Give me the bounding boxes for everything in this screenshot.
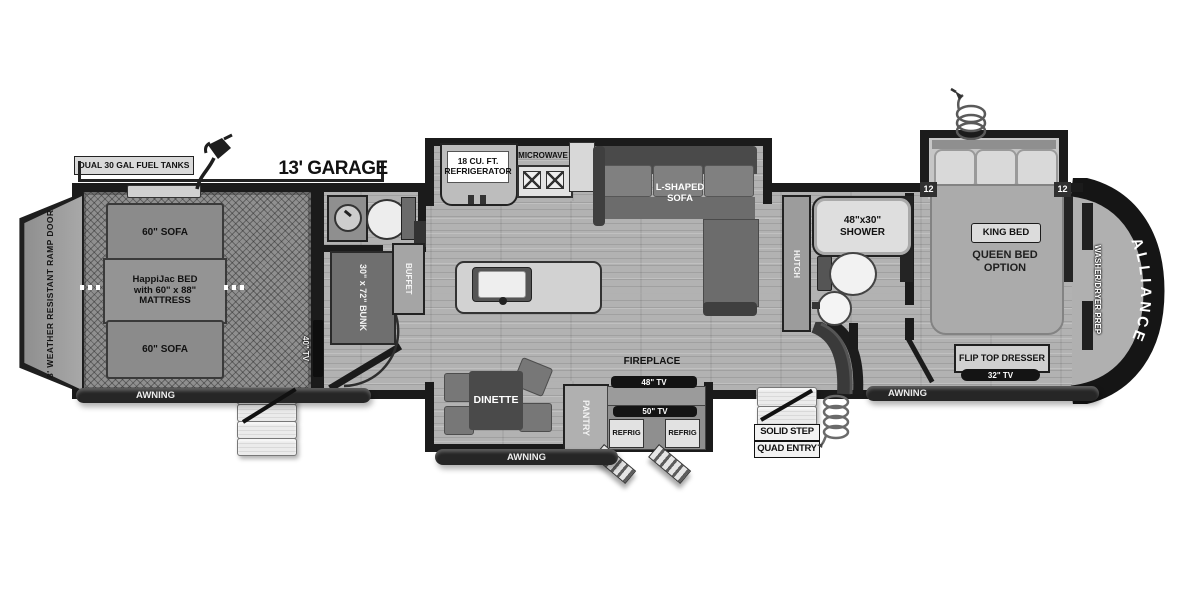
ramp-door-label: 8' WEATHER RESISTANT RAMP DOOR: [42, 208, 58, 380]
garage-sofa-bottom: 60" SOFA: [106, 320, 224, 379]
happijac-bed: HappiJac BED with 60" x 88" MATTRESS: [103, 258, 227, 324]
burner-left: [523, 171, 541, 189]
cooktop: [517, 165, 573, 198]
fuel-tanks-label: DUAL 30 GAL FUEL TANKS: [74, 156, 194, 175]
sofa-arm-left: [593, 146, 605, 226]
refrigerator-line2: REFRIGERATOR: [444, 167, 511, 177]
tv-50: 50" TV: [613, 406, 697, 417]
slide-depth-right: 12: [1054, 182, 1071, 197]
sofa-label-line2: SOFA: [667, 194, 693, 205]
floorplan: ALLIANCE 8' WEATHER RESISTANT RAMP DOOR …: [0, 0, 1200, 600]
garage-dim-tick-left: [78, 161, 81, 181]
kitchen-slide-wall-left: [425, 138, 434, 206]
hutch: HUTCH: [782, 195, 811, 332]
refrigerator: 18 CU. FT. REFRIGERATOR: [440, 143, 518, 206]
slide-depth-left: 12: [920, 182, 937, 197]
dinette-table: DINETTE: [469, 371, 523, 430]
garage-sofa-top: 60" SOFA: [106, 203, 224, 262]
l-shaped-sofa-label: L-SHAPED SOFA: [636, 182, 724, 206]
sofa-arm-bottom: [703, 302, 757, 316]
shower: 48"x30" SHOWER: [812, 196, 913, 257]
curved-stairs: [808, 322, 872, 396]
happijac-line3: MATTRESS: [139, 296, 191, 307]
island-faucet: [499, 297, 507, 305]
bath-sink: [817, 291, 852, 326]
entry-label-1: SOLID STEP: [754, 424, 820, 441]
closet-wall-stub: [849, 323, 858, 349]
awning-center: AWNING: [435, 449, 618, 465]
half-bath-sink: [327, 195, 368, 242]
awning-center-label: AWNING: [507, 452, 546, 463]
headboard: [932, 140, 1056, 149]
tiedown-right: [224, 285, 246, 290]
refrigerator-foot-left: [468, 195, 474, 204]
awning-right: AWNING: [866, 386, 1099, 401]
king-bed-badge: KING BED: [971, 223, 1041, 243]
dinette-chair: [519, 403, 552, 432]
toilet: [829, 252, 877, 296]
spray-hose-icon: [943, 86, 997, 140]
shower-line1: 48"x30": [844, 215, 881, 227]
kitchen-island: [455, 261, 602, 314]
washer-dryer-prep-label: WASHER/DRYER PREP: [1091, 236, 1104, 344]
queen-line2: OPTION: [984, 262, 1026, 275]
garage-step: [237, 438, 297, 456]
microwave-label: MICROWAVE: [512, 150, 574, 161]
garage-dim-label: 13' GARAGE: [278, 158, 388, 179]
tv-48: 48" TV: [611, 376, 697, 388]
awning-right-label: AWNING: [888, 388, 927, 399]
awning-left: AWNING: [76, 388, 371, 403]
fuel-nozzle-icon: [180, 133, 234, 195]
pantry: PANTRY: [563, 384, 609, 451]
outdoor-refrig-left: REFRIG: [609, 419, 644, 448]
power-cord-icon: [816, 390, 854, 450]
awning-left-label: AWNING: [136, 390, 175, 401]
queen-line1: QUEEN BED: [972, 249, 1037, 262]
buffet: BUFFET: [392, 243, 425, 315]
tv-40-label: 40" TV: [299, 323, 312, 375]
garage-dim-line: [78, 179, 384, 182]
fireplace-label: FIREPLACE: [600, 356, 704, 368]
burner-right: [546, 171, 564, 189]
half-bath-sink-bowl: [334, 204, 362, 232]
shower-line2: SHOWER: [840, 227, 885, 239]
tiedown-left: [80, 285, 102, 290]
dinette-slide-wall-left: [425, 382, 434, 452]
bunk: 30" x 72" BUNK: [330, 251, 396, 345]
island-sink-basin: [478, 271, 526, 298]
entry-label-2: QUAD ENTRY: [754, 441, 820, 458]
refrigerator-foot-right: [480, 195, 486, 204]
kitchen-slide-wall-right: [763, 138, 772, 204]
tv-32: 32" TV: [961, 369, 1040, 381]
garage-step: [237, 421, 297, 439]
bath-sink-faucet: [812, 302, 820, 309]
queen-bed-option-label: QUEEN BED OPTION: [950, 246, 1060, 277]
sofa-chaise: [703, 219, 759, 307]
tv-40: [313, 320, 323, 377]
outdoor-refrig-right: REFRIG: [665, 419, 700, 448]
refrigerator-label: 18 CU. FT. REFRIGERATOR: [447, 151, 509, 183]
happijac-line1: HappiJac BED: [133, 275, 198, 286]
